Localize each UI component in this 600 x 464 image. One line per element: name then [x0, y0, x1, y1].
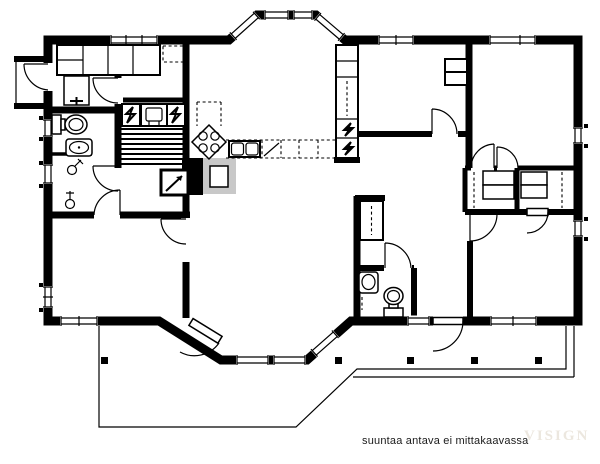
fireplace-icon [161, 170, 188, 195]
hall-closet-column [355, 195, 385, 240]
chimney-icon [182, 158, 236, 195]
window-icon [407, 316, 430, 327]
window-icon [264, 10, 289, 21]
sauna-heater-icon [141, 104, 167, 126]
terrace-post-icon [335, 357, 342, 364]
entry-closet-column [334, 45, 360, 163]
terrace-post-icon [407, 357, 414, 364]
window-icon [490, 316, 537, 327]
window-icon [489, 35, 536, 46]
window-icon [39, 161, 54, 188]
window-icon [293, 10, 313, 21]
window-icon [236, 355, 269, 366]
toilet-icon [52, 115, 87, 134]
wardrobe-icon [483, 185, 514, 199]
closet-icon [445, 72, 467, 85]
kitchen-sink-icon [229, 141, 260, 157]
second-washbasin-icon [359, 272, 378, 293]
terrace-outline [99, 326, 574, 427]
plan-disclaimer-text: suuntaa antava ei mittakaavassa [362, 435, 528, 447]
terrace-post-icon [535, 357, 542, 364]
floor-plan-canvas: suuntaa antava ei mittakaavassa VISIGN [0, 0, 600, 464]
window-icon [273, 355, 306, 366]
visign-watermark: VISIGN [524, 428, 589, 445]
floor-plan-drawing [0, 0, 600, 464]
terrace-posts [101, 357, 542, 364]
terrace-post-icon [471, 357, 478, 364]
terrace-post-icon [101, 357, 108, 364]
door-swing-icon [24, 63, 54, 91]
closet-icon [445, 59, 467, 72]
wardrobe-icon [521, 185, 547, 198]
closet-icon [336, 45, 358, 158]
wardrobe-icon [483, 171, 514, 185]
window-icon [110, 35, 158, 46]
window-icon [60, 316, 98, 327]
washbasin-icon [66, 139, 92, 156]
laundry-sink-icon [64, 76, 89, 105]
wardrobe-icon [521, 172, 547, 185]
second-toilet-icon [384, 288, 403, 318]
sauna-fixtures [121, 104, 185, 164]
window-icon [39, 283, 54, 312]
window-icon [378, 35, 414, 46]
door-swing-icon [433, 316, 463, 352]
bedroom-corner-closet [445, 59, 467, 85]
